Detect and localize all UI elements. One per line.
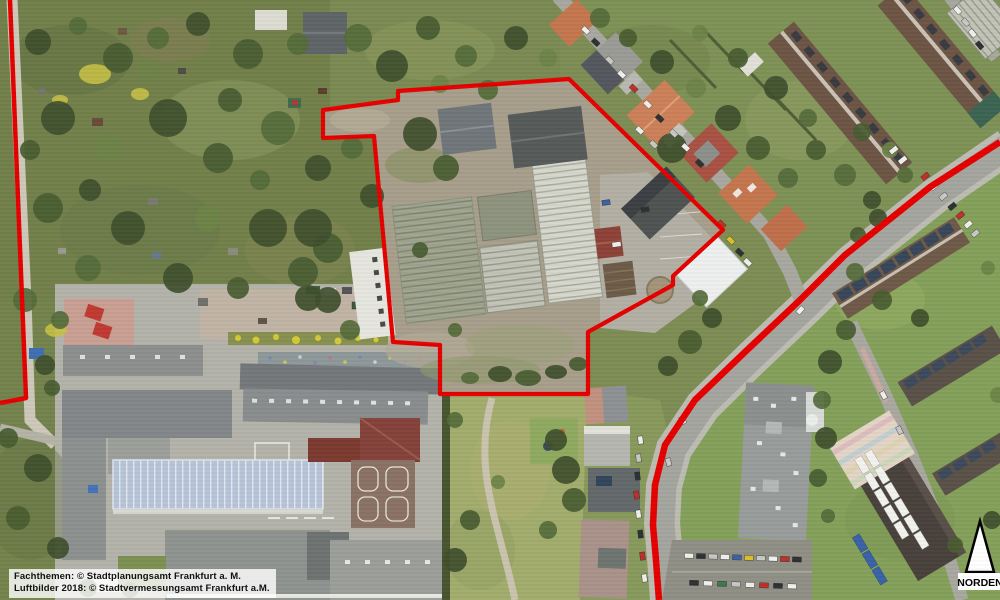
school-building-south-east (330, 540, 448, 600)
school-building-main (62, 390, 232, 438)
greenhouse-a (392, 197, 486, 324)
parking-lot (662, 540, 812, 600)
school-building-west-wing (62, 438, 106, 560)
sports-court-pink (64, 299, 134, 345)
copyright-line-1: Fachthemen: © Stadtplanungsamt Frankfurt… (14, 571, 270, 583)
copyright-line-2: Luftbilder 2018: © Stadtvermessungsamt F… (14, 583, 270, 595)
house-dark (588, 468, 640, 512)
apartment-block (738, 382, 814, 541)
greenhouse-c (480, 240, 546, 313)
allotment-shed-white (255, 10, 287, 30)
copyright-overlay: Fachthemen: © Stadtplanungsamt Frankfurt… (9, 569, 276, 598)
north-label: NORDEN (957, 577, 1000, 589)
aerial-map-view: NORDEN Fachthemen: © Stadtplanungsamt Fr… (0, 0, 1000, 600)
aerial-photo-canvas: NORDEN (0, 0, 1000, 600)
traffic-training-court (351, 460, 415, 528)
greenhouse-b (477, 191, 536, 241)
blue-hall-roof (113, 460, 323, 509)
school-building-west (63, 345, 203, 376)
